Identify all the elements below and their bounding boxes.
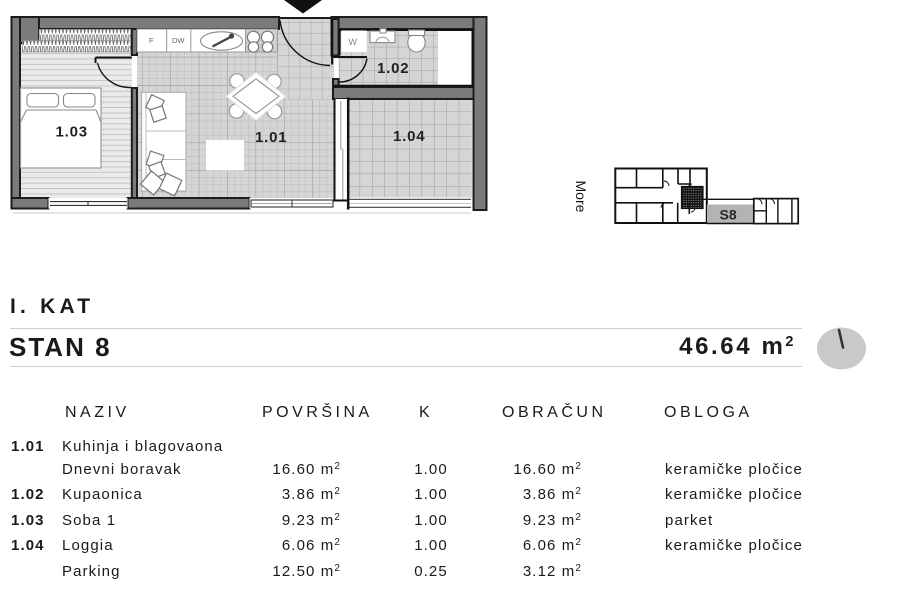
- svg-text:1.01: 1.01: [255, 129, 287, 146]
- svg-text:1.02: 1.02: [377, 60, 409, 77]
- svg-text:W: W: [349, 37, 358, 47]
- svg-text:DW: DW: [172, 36, 185, 45]
- svg-text:F: F: [149, 36, 154, 45]
- svg-text:1.03: 1.03: [56, 124, 88, 141]
- svg-text:S8: S8: [720, 207, 737, 223]
- svg-text:1.04: 1.04: [393, 128, 425, 145]
- svg-text:More: More: [573, 181, 589, 213]
